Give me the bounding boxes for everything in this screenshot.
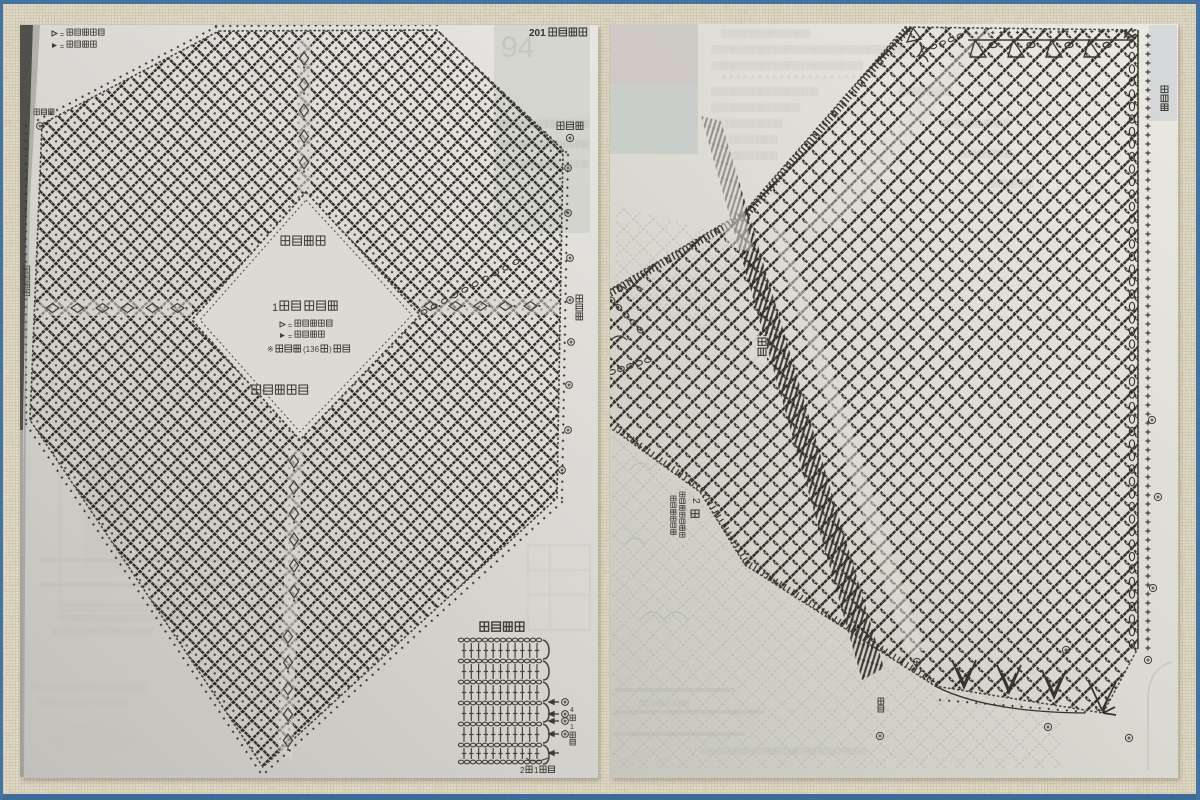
svg-text:2: 2: [690, 498, 701, 504]
svg-text:1: 1: [534, 766, 539, 775]
svg-text:=: =: [288, 323, 292, 330]
svg-text:4: 4: [570, 707, 574, 714]
svg-text:): ): [329, 345, 332, 354]
svg-text:=: =: [288, 334, 292, 341]
svg-text:1: 1: [570, 724, 574, 731]
svg-text:※: ※: [267, 345, 274, 354]
svg-text:(136: (136: [303, 345, 320, 354]
svg-text:=: =: [60, 32, 64, 39]
svg-text:=: =: [60, 44, 64, 51]
svg-text:1: 1: [272, 302, 278, 314]
svg-text:201: 201: [529, 28, 546, 39]
svg-text:2: 2: [520, 766, 525, 775]
